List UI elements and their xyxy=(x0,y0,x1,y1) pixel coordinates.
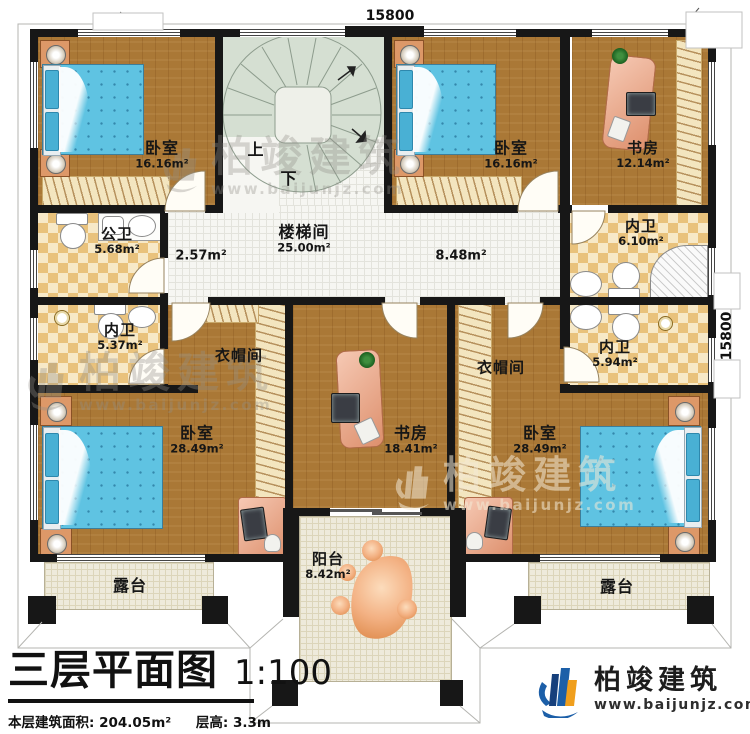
rack-cloak-left-top xyxy=(205,303,259,323)
dimension-top: 15800 xyxy=(350,8,430,24)
wall xyxy=(708,145,716,248)
lamp-icon xyxy=(675,532,695,552)
bed-tr xyxy=(396,64,496,155)
wall xyxy=(560,305,570,349)
window xyxy=(78,29,180,37)
pillow xyxy=(399,70,413,109)
wall xyxy=(30,554,57,562)
sink-icon xyxy=(570,304,602,330)
tv-icon xyxy=(240,506,268,541)
toilet-bowl xyxy=(60,223,86,249)
ceiling-light-icon xyxy=(54,310,70,326)
wall xyxy=(708,520,716,562)
window xyxy=(708,248,716,295)
wall xyxy=(608,205,716,213)
room-label-public-bath: 公卫5.68m² xyxy=(94,226,139,256)
wall xyxy=(516,29,592,37)
wall xyxy=(160,384,168,393)
bed-bl xyxy=(42,426,163,529)
room-label-bedroom-br: 卧室28.49m² xyxy=(513,425,566,456)
window xyxy=(424,29,516,37)
room-label-cloak-right: 衣帽间 xyxy=(477,360,525,377)
wall xyxy=(708,382,716,428)
window xyxy=(240,29,345,37)
lamp-icon xyxy=(47,402,67,422)
dimension-right: 15800 xyxy=(719,304,737,368)
wall xyxy=(205,554,283,562)
computer-monitor-icon xyxy=(626,92,656,116)
wall xyxy=(215,29,223,213)
toilet-bowl xyxy=(612,262,640,290)
bed-tl xyxy=(42,64,144,155)
wall xyxy=(384,29,392,213)
stair-down-label: 下 xyxy=(280,170,297,188)
wall xyxy=(560,29,570,213)
spiral-staircase xyxy=(223,37,386,213)
wall xyxy=(283,508,299,617)
wall xyxy=(30,297,168,305)
pillar xyxy=(28,596,56,624)
computer-monitor-icon xyxy=(331,393,360,423)
lamp-icon xyxy=(47,534,67,554)
window xyxy=(30,318,38,360)
wall xyxy=(160,293,168,349)
wall xyxy=(285,297,293,516)
balcony-stone xyxy=(362,540,383,561)
window xyxy=(30,250,38,288)
wardrobe-bedroom-tr xyxy=(396,176,522,207)
rack-cloak-right xyxy=(458,303,492,515)
blanket-fold xyxy=(59,430,91,525)
room-label-study-tr: 书房12.14m² xyxy=(616,140,669,170)
sink-icon xyxy=(570,271,602,297)
wall xyxy=(660,554,708,562)
pillar xyxy=(202,596,228,624)
wall xyxy=(447,297,455,516)
stair-up-label: 上 xyxy=(247,141,264,159)
pillow xyxy=(45,70,59,109)
wall xyxy=(560,213,570,305)
closet-study-tr xyxy=(676,40,702,207)
room-label-inner-bath-right: 内卫5.94m² xyxy=(592,339,637,369)
nightstand xyxy=(40,396,72,426)
room-label-terrace-left: 露台 xyxy=(113,577,147,595)
room-label-stairwell: 楼梯间25.00m² xyxy=(277,224,330,255)
pillow xyxy=(399,112,413,151)
drawing-scale: 1:100 xyxy=(234,653,332,693)
blanket-fold xyxy=(413,67,443,152)
window xyxy=(57,554,205,562)
wall xyxy=(30,148,38,250)
wall xyxy=(30,29,38,62)
pillar xyxy=(687,596,714,624)
plant-icon xyxy=(359,352,375,368)
room-label-bedroom-bl: 卧室28.49m² xyxy=(170,425,223,456)
window xyxy=(708,62,716,145)
wall xyxy=(38,205,165,213)
room-label-cloak-left: 衣帽间 xyxy=(215,348,263,365)
stool-icon xyxy=(264,534,281,552)
ceiling-light-icon xyxy=(658,316,673,331)
room-label-balcony: 阳台8.42m² xyxy=(305,551,350,581)
window xyxy=(540,554,660,562)
room-label-terrace-right: 露台 xyxy=(600,578,634,596)
room-label-inner-bath-left: 内卫5.37m² xyxy=(97,322,142,352)
wall xyxy=(392,205,518,213)
pillow xyxy=(686,479,700,522)
plant-icon xyxy=(612,48,628,64)
floor-plan-canvas: 柏竣建筑www.baijunjz.com 柏竣建筑www.baijunjz.co… xyxy=(0,0,750,734)
area-label-hall-right: 8.48m² xyxy=(435,250,486,265)
pillow xyxy=(686,433,700,476)
toilet-bowl xyxy=(612,313,640,341)
brand-logo: 柏竣建筑 www.baijunjz.com xyxy=(532,662,750,718)
balcony-stone xyxy=(397,599,417,619)
wall xyxy=(560,385,708,393)
window xyxy=(30,62,38,148)
wall xyxy=(30,385,198,393)
stool-icon xyxy=(466,532,483,550)
brand-url: www.baijunjz.com xyxy=(594,697,750,713)
wall xyxy=(180,29,240,37)
wall xyxy=(420,297,505,305)
wall xyxy=(160,213,168,258)
room-label-bedroom-tr: 卧室16.16m² xyxy=(484,140,537,171)
wall xyxy=(560,384,570,393)
balcony-stone xyxy=(331,596,350,615)
wall xyxy=(208,297,385,305)
lamp-icon xyxy=(675,402,695,422)
brand-name: 柏竣建筑 xyxy=(594,667,750,694)
page-title: 三层平面图 xyxy=(8,636,218,696)
window xyxy=(592,29,668,37)
pillow xyxy=(45,433,59,477)
tv-icon xyxy=(484,505,512,540)
blanket-fold xyxy=(652,430,684,523)
blanket-fold xyxy=(59,67,89,152)
wall xyxy=(466,554,540,562)
title-underline xyxy=(8,699,254,703)
pillar xyxy=(514,596,541,624)
window xyxy=(30,425,38,520)
pillow xyxy=(45,112,59,151)
lamp-icon xyxy=(400,45,420,65)
wall xyxy=(450,508,466,617)
wall xyxy=(708,295,716,338)
wall xyxy=(708,29,716,62)
area-label-hall-left: 2.57m² xyxy=(175,250,226,265)
window xyxy=(708,338,716,382)
pillar xyxy=(440,680,463,706)
bed-br xyxy=(580,426,701,527)
title-info: 本层建筑面积: 204.05m² 层高: 3.3m xyxy=(8,711,332,731)
window xyxy=(708,428,716,520)
nightstand xyxy=(668,526,700,556)
title-block: 三层平面图 1:100 本层建筑面积: 204.05m² 层高: 3.3m xyxy=(8,636,332,731)
room-label-inner-bath-tr: 内卫6.10m² xyxy=(618,218,663,248)
lamp-icon xyxy=(46,45,66,65)
sliding-door xyxy=(372,512,422,515)
lamp-icon xyxy=(46,154,66,174)
lamp-icon xyxy=(400,154,420,174)
room-label-bedroom-tl: 卧室16.16m² xyxy=(135,140,188,171)
wardrobe-bedroom-tl xyxy=(42,176,170,207)
nightstand xyxy=(668,396,700,426)
room-label-study-bottom: 书房18.41m² xyxy=(384,425,437,456)
floor-corridor xyxy=(168,205,562,305)
brand-building-icon xyxy=(532,662,586,718)
pillow xyxy=(45,480,59,524)
